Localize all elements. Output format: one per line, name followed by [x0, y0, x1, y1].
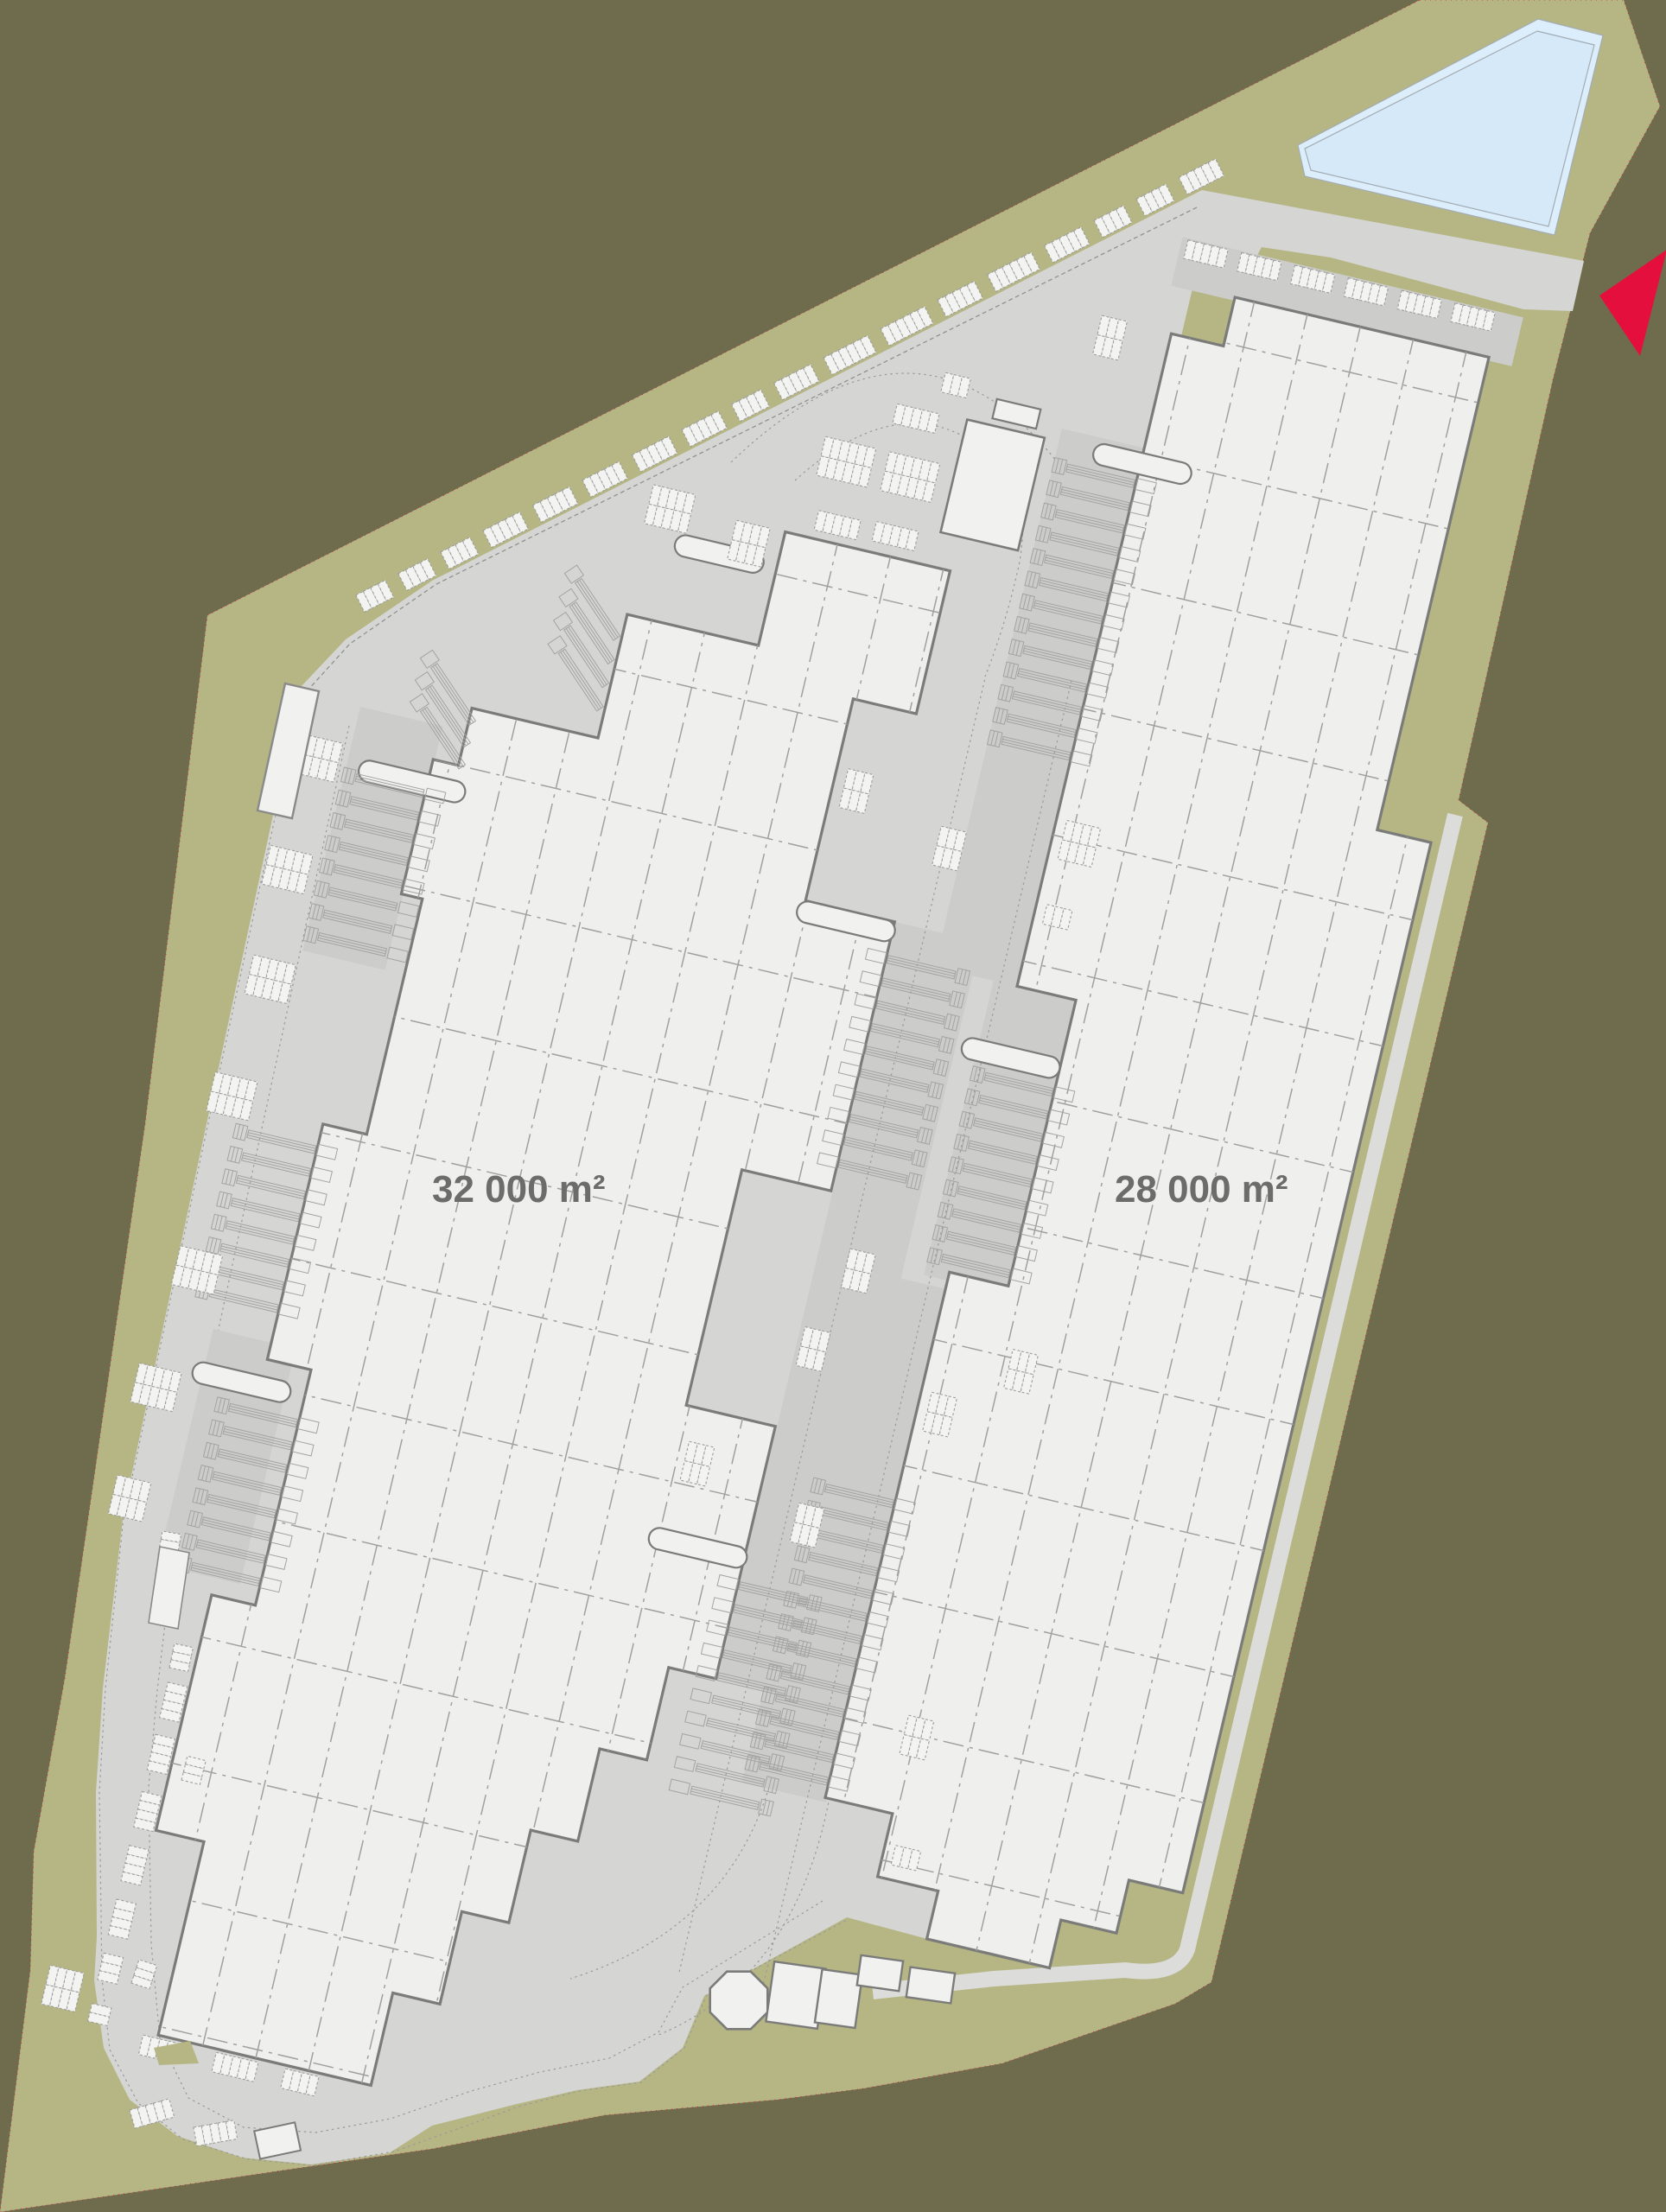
svg-text:32 000 m²: 32 000 m² [432, 1168, 606, 1211]
svg-text:28 000 m²: 28 000 m² [1115, 1168, 1288, 1211]
